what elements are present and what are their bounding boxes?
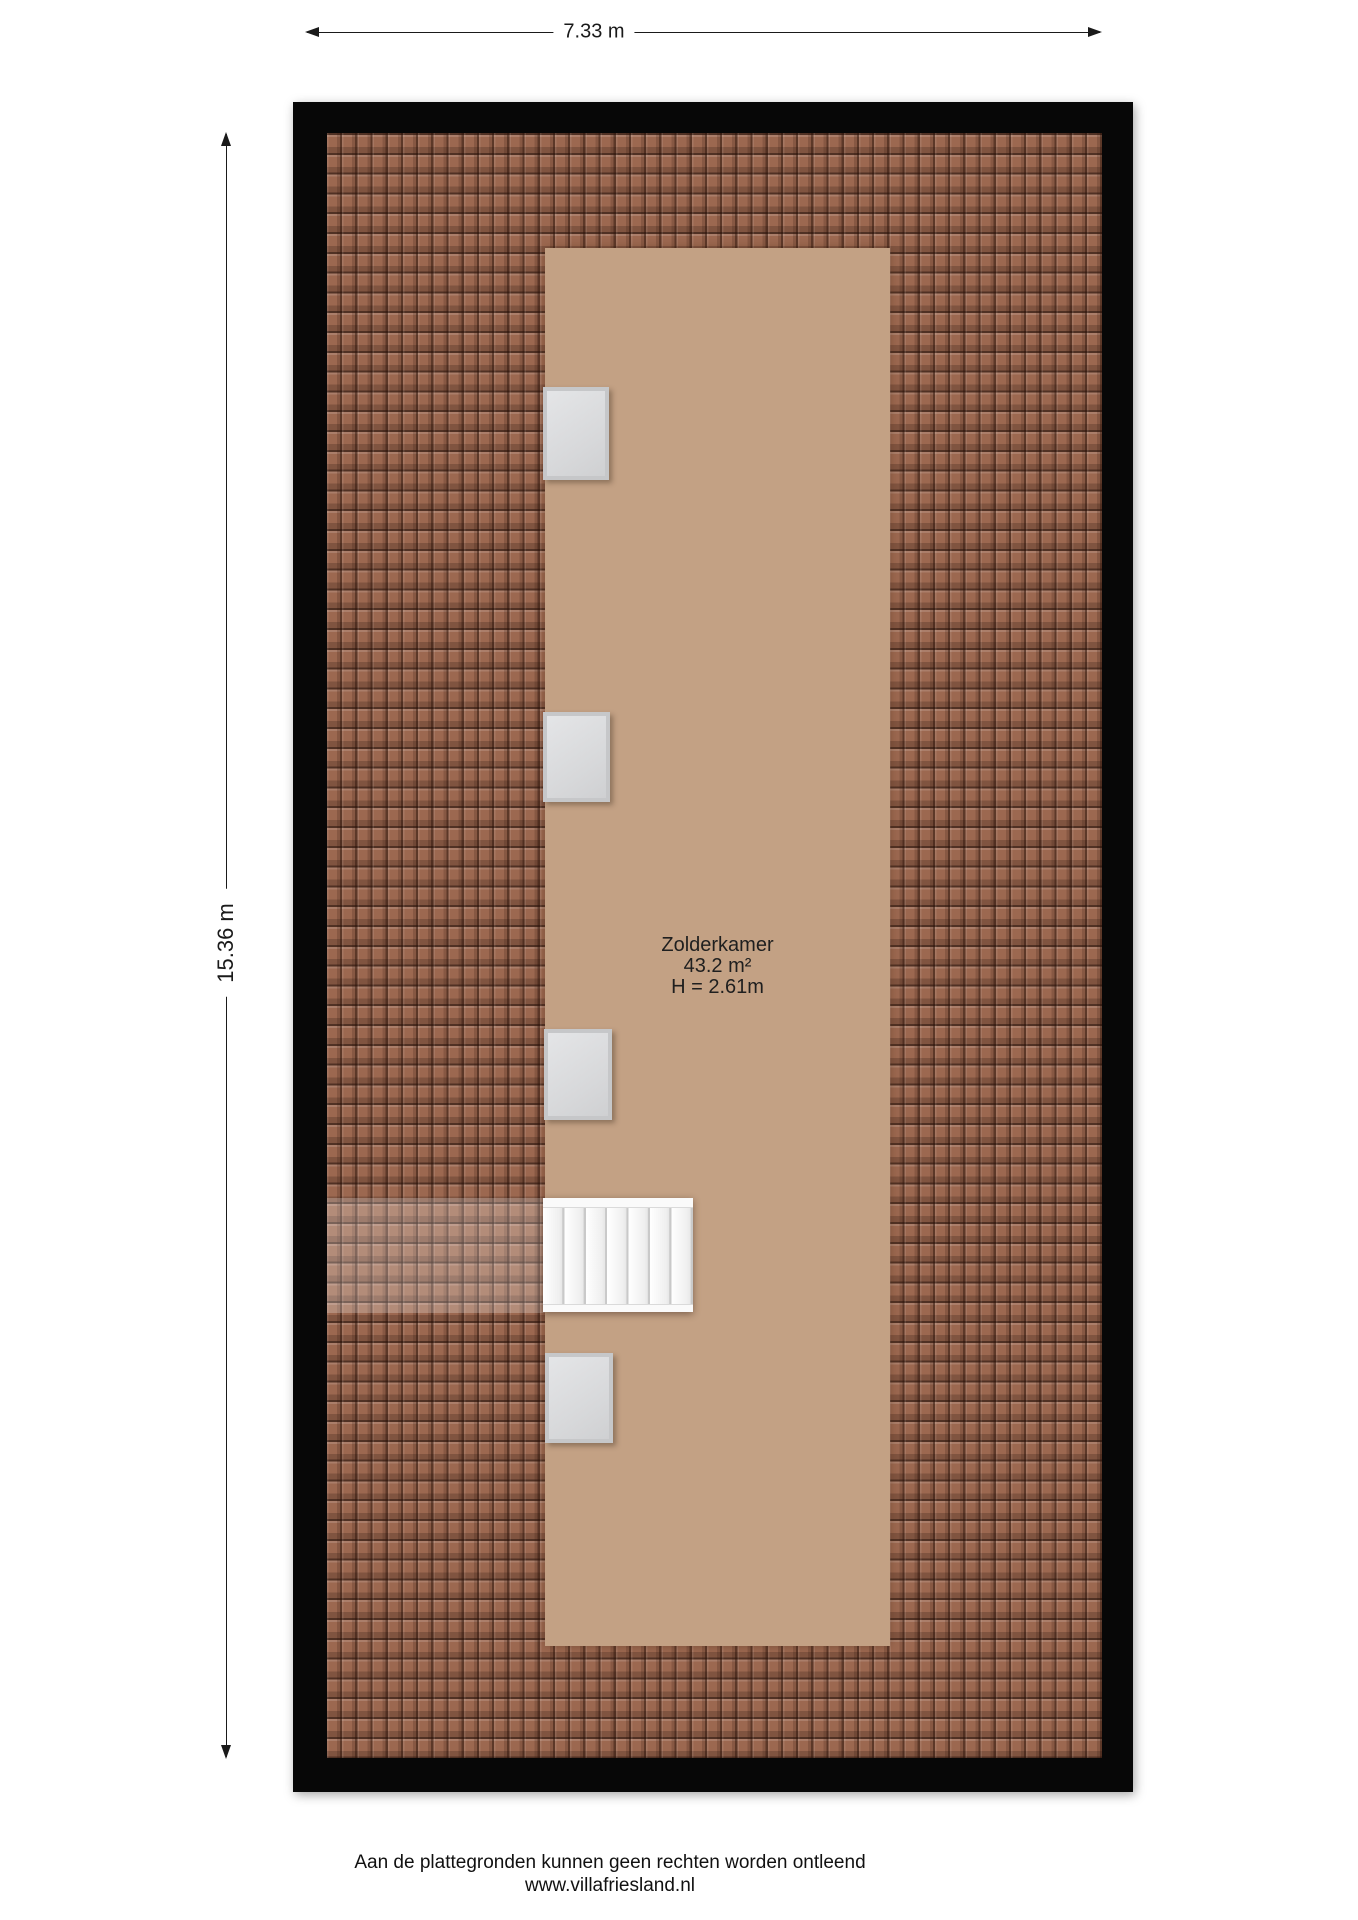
height-dimension-label: 15.36 m xyxy=(209,889,243,997)
roof-window-2 xyxy=(543,712,610,802)
room-name: Zolderkamer xyxy=(545,935,890,956)
website-url: www.villafriesland.nl xyxy=(210,1874,1010,1897)
room-label: Zolderkamer 43.2 m² H = 2.61m xyxy=(545,935,890,998)
width-dimension-line xyxy=(307,32,1100,33)
roof-window-4 xyxy=(545,1353,613,1443)
height-dimension: 15.36 m xyxy=(218,132,234,1759)
roof-window-3 xyxy=(544,1029,612,1120)
width-dimension-label: 7.33 m xyxy=(553,21,634,44)
staircase xyxy=(543,1198,693,1312)
room-ceiling-height: H = 2.61m xyxy=(545,977,890,998)
disclaimer-text: Aan de plattegronden kunnen geen rechten… xyxy=(210,1851,1010,1874)
roof-window-1 xyxy=(543,387,609,480)
stair-treads xyxy=(543,1207,693,1305)
footer: Aan de plattegronden kunnen geen rechten… xyxy=(210,1851,1010,1897)
width-dimension: 7.33 m xyxy=(305,24,1102,40)
room-area: 43.2 m² xyxy=(545,956,890,977)
stair-opening-overlay xyxy=(327,1198,545,1313)
floorplan: Zolderkamer 43.2 m² H = 2.61m xyxy=(293,102,1133,1792)
floorplan-canvas: 7.33 m 15.36 m Zolderkamer 43.2 m² H = 2… xyxy=(0,0,1358,1920)
